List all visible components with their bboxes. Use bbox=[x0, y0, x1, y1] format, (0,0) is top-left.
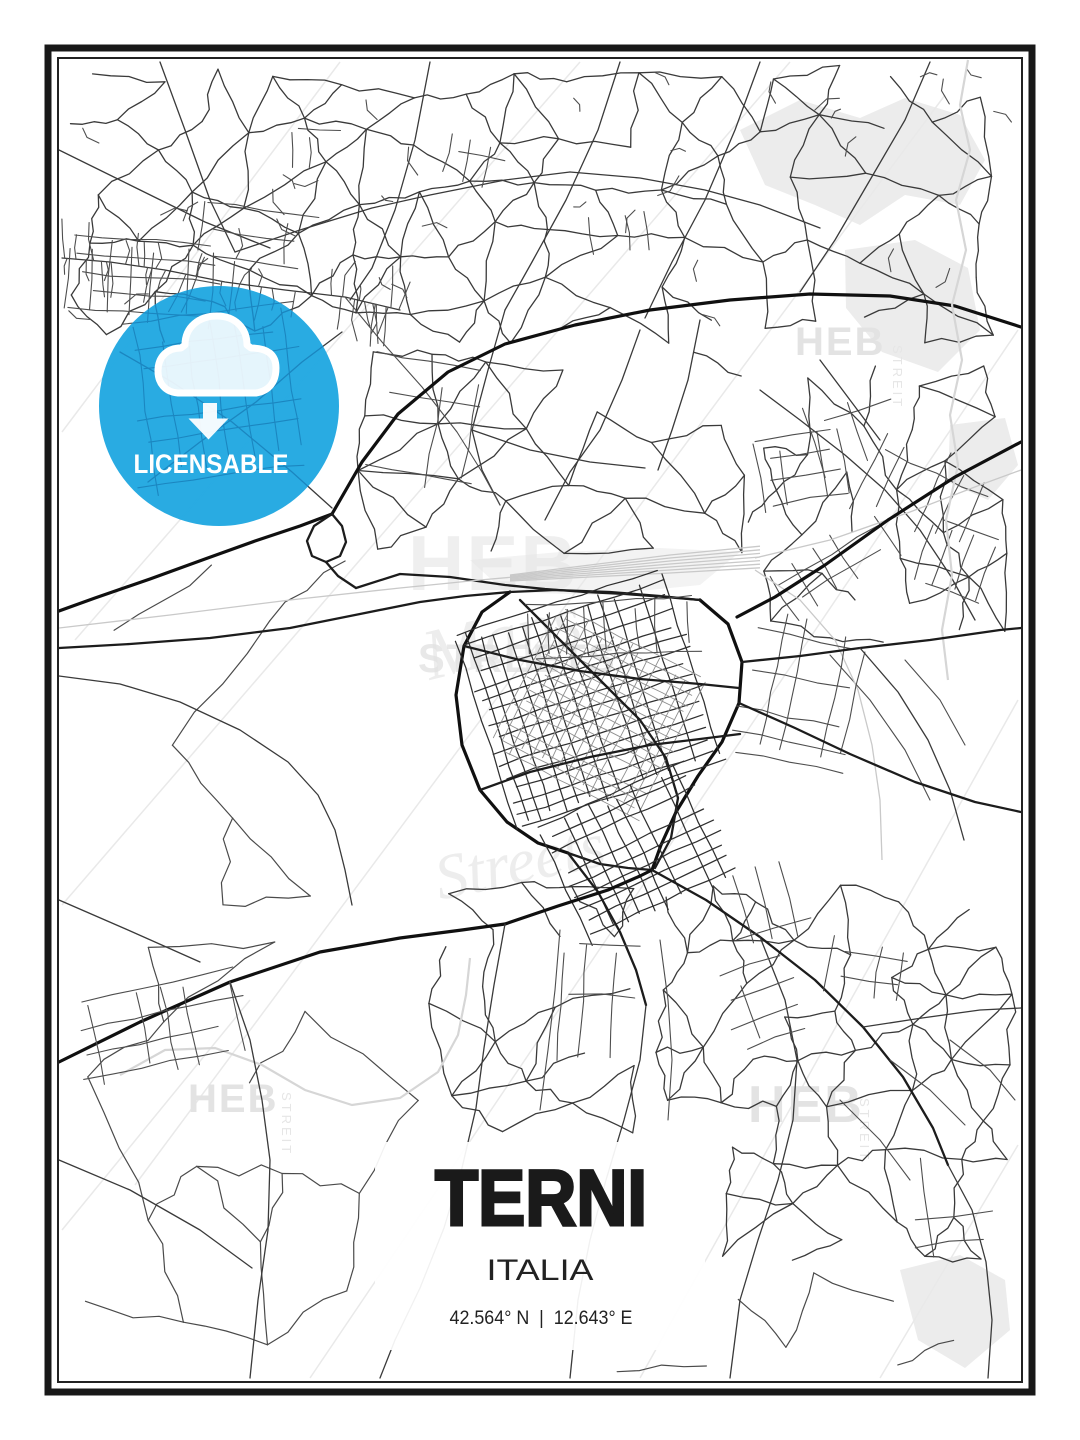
svg-text:42.564° N | 12.643° E: 42.564° N | 12.643° E bbox=[450, 1308, 633, 1329]
svg-text:HEB: HEB bbox=[188, 1077, 278, 1121]
svg-text:LICENSABLE: LICENSABLE bbox=[134, 449, 289, 479]
svg-text:HEB: HEB bbox=[795, 320, 885, 364]
svg-text:TERNI: TERNI bbox=[435, 1153, 647, 1242]
svg-text:HEB: HEB bbox=[748, 1076, 864, 1134]
svg-text:ITALIA: ITALIA bbox=[487, 1254, 594, 1287]
svg-text:STREIT: STREIT bbox=[279, 1092, 294, 1156]
svg-text:STREIT: STREIT bbox=[890, 345, 905, 409]
